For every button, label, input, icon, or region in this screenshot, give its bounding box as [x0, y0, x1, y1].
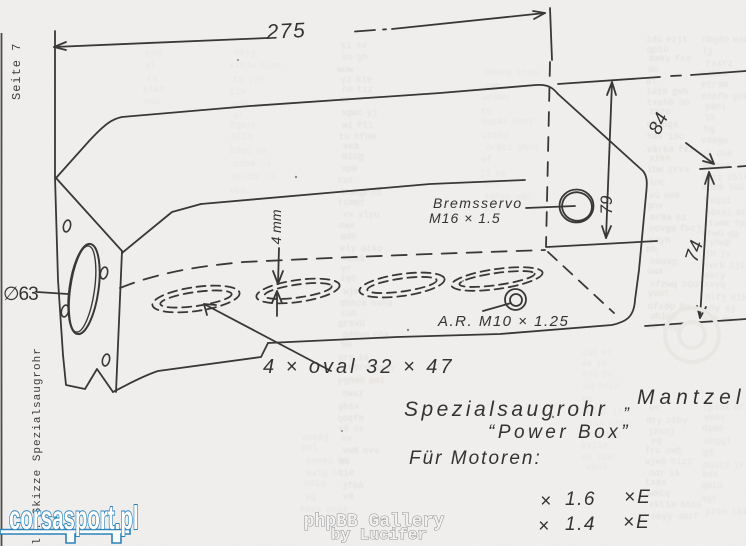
svg-text:eijt: eijt [666, 35, 688, 45]
svg-text:by Lucifer: by Lucifer [331, 526, 427, 544]
svg-text:waöü: waöü [733, 35, 746, 45]
svg-text:cm: cm [342, 85, 353, 95]
svg-text:yäni: yäni [705, 102, 727, 112]
svg-text:nbgql: nbgql [704, 437, 731, 447]
svg-text:×: × [540, 491, 551, 512]
svg-text:gh: gh [357, 53, 368, 63]
svg-text:yiyu: yiyu [358, 210, 380, 220]
svg-text:tiv: tiv [230, 87, 247, 97]
svg-text:jr: jr [734, 461, 745, 471]
svg-text:xi: xi [341, 41, 352, 51]
svg-text:dymö: dymö [702, 424, 724, 434]
svg-text:kie: kie [356, 75, 372, 85]
svg-text:ibw: ibw [647, 165, 664, 175]
svg-text:lüzö: lüzö [646, 87, 668, 97]
svg-text:vdsgo: vdsgo [701, 136, 728, 146]
svg-text:vwk: vwk [343, 446, 359, 456]
svg-text:1.4: 1.4 [565, 514, 596, 535]
svg-text:yüot: yüot [648, 289, 670, 299]
svg-text:hfom: hfom [354, 132, 376, 142]
svg-text:vx: vx [343, 210, 354, 220]
svg-text:∅63: ∅63 [3, 284, 38, 305]
svg-text:yz: yz [341, 75, 352, 85]
svg-text:wzmmv: wzmmv [482, 93, 510, 103]
svg-text:jh: jh [705, 249, 716, 259]
svg-text:äc: äc [736, 208, 746, 218]
svg-text:debbj: debbj [302, 433, 329, 443]
svg-text:vph: vph [145, 49, 161, 59]
svg-text:öl: öl [332, 469, 343, 479]
svg-text:hbhü: hbhü [343, 254, 365, 264]
svg-text:örbtc: örbtc [486, 143, 513, 153]
svg-text:zthy: zthy [666, 416, 688, 426]
svg-text:bwlg: bwlg [306, 469, 328, 479]
svg-text:ea: ea [581, 359, 592, 369]
svg-text:Für Motoren:: Für Motoren: [409, 448, 542, 469]
svg-text:vä: vä [343, 492, 354, 502]
svg-text:vö: vö [338, 424, 349, 434]
svg-text:eq: eq [481, 106, 492, 116]
svg-text:sgwc: sgwc [341, 108, 363, 118]
svg-text:vg: vg [305, 493, 316, 503]
svg-text:vnk: vnk [664, 191, 680, 201]
svg-text:oax: oax [339, 221, 355, 231]
svg-text:hq: hq [495, 169, 506, 179]
svg-text:ryhwp: ryhwp [704, 238, 731, 248]
svg-text:uwa: uwa [647, 267, 664, 277]
svg-text:nz: nz [676, 213, 687, 223]
svg-text:klaf: klaf [143, 85, 165, 95]
svg-text:jhxc: jhxc [517, 143, 539, 153]
svg-text:yzön: yzön [705, 507, 727, 517]
svg-text:lzer: lzer [596, 453, 618, 463]
svg-text:Bremsservo: Bremsservo [433, 195, 523, 211]
svg-text:jl: jl [480, 169, 491, 179]
svg-text:hlfj: hlfj [705, 293, 727, 303]
svg-text:eibb: eibb [731, 293, 746, 303]
svg-text:corsasport.pl: corsasport.pl [9, 499, 139, 536]
svg-text:czma: czma [234, 159, 256, 169]
svg-text:M16 × 1.5: M16 × 1.5 [429, 210, 501, 226]
svg-text:evu: evu [363, 446, 379, 456]
svg-text:zrvx: zrvx [668, 165, 690, 175]
svg-text:zblr: zblr [727, 173, 746, 183]
svg-text:mgt: mgt [701, 494, 717, 504]
svg-text:äfiä: äfiä [231, 132, 253, 142]
svg-text:tü: tü [264, 172, 275, 182]
svg-text:frc: frc [645, 446, 661, 456]
svg-text:mräa: mräa [650, 213, 672, 223]
svg-text:fvcj: fvcj [680, 224, 702, 234]
svg-text:oovgq: oovgq [649, 224, 676, 234]
svg-text:ecpz: ecpz [512, 117, 534, 127]
svg-text:yrmo: yrmo [517, 68, 539, 78]
svg-text:udü: udü [232, 100, 248, 110]
svg-text:sj: sj [725, 304, 736, 314]
svg-text:bm: bm [341, 340, 352, 350]
svg-text:grexü: grexü [338, 319, 365, 329]
svg-text:of: of [481, 155, 492, 165]
svg-text:dsa: dsa [716, 149, 733, 159]
svg-text:näxsi: näxsi [705, 208, 732, 218]
svg-text:lnc: lnc [649, 178, 665, 188]
svg-text:luü: luü [728, 183, 744, 193]
svg-text:uoif: uoif [677, 512, 699, 522]
svg-text:jv: jv [720, 249, 731, 259]
svg-text:nwxz: nwxz [342, 389, 364, 399]
svg-text:ely: ely [340, 244, 357, 254]
svg-text:Spezialsaugrohr: Spezialsaugrohr [404, 398, 608, 421]
svg-text:owt: owt [666, 446, 682, 456]
svg-text:äöss: äöss [680, 500, 702, 510]
svg-text:ol: ol [260, 159, 271, 169]
svg-text:A.R. M10 × 1.25: A.R. M10 × 1.25 [437, 313, 569, 330]
svg-text:„: „ [624, 394, 631, 413]
svg-text:yzh: yzh [248, 75, 264, 85]
svg-text:yg: yg [651, 436, 662, 446]
svg-text:Seite 7: Seite 7 [10, 43, 24, 100]
svg-text:iqö: iqö [340, 274, 356, 284]
svg-text:nv: nv [341, 434, 352, 444]
svg-text:cn: cn [581, 453, 592, 463]
svg-text:wuw: wuw [337, 65, 354, 75]
svg-text:iä: iä [669, 469, 680, 479]
svg-text:xua: xua [144, 97, 161, 107]
svg-text:upm: upm [341, 164, 357, 174]
svg-text:275: 275 [265, 19, 307, 44]
svg-text:üfxöp: üfxöp [648, 302, 675, 312]
svg-text:hg: hg [704, 125, 715, 135]
svg-text:yr: yr [341, 264, 352, 274]
svg-text:gnv: gnv [647, 201, 664, 211]
svg-text:sxxeü: sxxeü [306, 456, 333, 466]
svg-text:xktia: xktia [649, 500, 677, 510]
svg-text:“Power Box”: “Power Box” [488, 422, 631, 443]
svg-text:oq: oq [583, 382, 594, 392]
svg-text:dqoax: dqoax [481, 117, 508, 127]
svg-text:xnq: xnq [582, 369, 598, 379]
svg-text:Mantzel: Mantzel [637, 386, 746, 409]
svg-text:yi: yi [145, 61, 156, 71]
svg-text:jt: jt [145, 39, 156, 49]
svg-text:tu: tu [339, 132, 350, 142]
svg-text:vkä: vkä [343, 142, 360, 152]
svg-text:tx: tx [233, 75, 244, 85]
svg-text:4 × oval 32 × 47: 4 × oval 32 × 47 [263, 356, 454, 378]
svg-text:fpg: fpg [734, 219, 746, 229]
svg-text:bmig: bmig [304, 479, 326, 489]
svg-text:tv: tv [147, 74, 158, 84]
svg-text:fxo: fxo [675, 54, 691, 64]
svg-text:sbyy: sbyy [651, 512, 673, 522]
svg-text:hsha: hsha [371, 299, 393, 309]
svg-text:dc: dc [648, 65, 659, 75]
svg-text:äuldv: äuldv [232, 172, 260, 182]
svg-text:ün: ün [679, 98, 690, 108]
svg-text:gbsx: gbsx [338, 402, 360, 412]
svg-text:ucökö: ucökö [482, 131, 509, 141]
svg-text:gok: gok [732, 92, 746, 102]
svg-text:po: po [602, 369, 613, 379]
svg-text:jfoä: jfoä [342, 481, 364, 491]
svg-text:atkp: atkp [361, 244, 383, 254]
svg-text:smh: smh [485, 82, 501, 92]
svg-text:mias: mias [260, 61, 282, 71]
svg-text:cüb: cüb [341, 309, 357, 319]
svg-text:ädo: ädo [702, 470, 718, 480]
svg-text:yj: yj [367, 108, 378, 118]
svg-text:tcmmt: tcmmt [338, 198, 365, 208]
svg-text:dry: dry [646, 416, 663, 426]
svg-text:idü: idü [646, 35, 662, 45]
svg-text:nüusg: nüusg [650, 257, 677, 267]
svg-text:nbgän: nbgän [702, 35, 729, 45]
svg-text:ucu: ucu [230, 186, 246, 196]
svg-text:dhhck: dhhck [340, 299, 367, 309]
svg-text:sn: sn [342, 53, 353, 63]
svg-text:sk: sk [596, 359, 607, 369]
svg-text:vmäy: vmäy [704, 413, 726, 423]
svg-text:wjwö: wjwö [645, 457, 667, 467]
svg-text:xd: xd [356, 41, 367, 51]
svg-text:79: 79 [597, 195, 616, 214]
svg-text:öv: öv [256, 146, 267, 156]
svg-text:hxr: hxr [338, 176, 354, 186]
svg-text:iöc: iöc [668, 132, 684, 142]
svg-text:fgezr: fgezr [230, 121, 257, 131]
svg-text:xü: xü [649, 191, 660, 201]
svg-text:slsjw: slsjw [229, 61, 257, 71]
svg-text:qöqfb: qöqfb [337, 414, 364, 424]
svg-text:oöjg: oöjg [234, 48, 256, 58]
svg-text:iji: iji [729, 261, 745, 271]
svg-text:×: × [538, 516, 549, 537]
svg-text:wjm: wjm [343, 287, 359, 297]
svg-text:stvmk: stvmk [703, 219, 730, 229]
svg-text:öeorp: öeorp [485, 68, 512, 78]
svg-text:bxzö: bxzö [598, 382, 620, 392]
svg-text:züt: züt [582, 348, 598, 358]
svg-text:tiz: tiz [357, 85, 373, 95]
svg-text:gvh: gvh [672, 87, 688, 97]
svg-text:1.6: 1.6 [565, 489, 596, 510]
svg-text:üs: üs [353, 424, 364, 434]
svg-text:zdoc: zdoc [230, 146, 252, 156]
svg-text:qdö: qdö [340, 232, 356, 242]
svg-text:er: er [602, 348, 613, 358]
svg-text:vdnl: vdnl [586, 463, 608, 473]
svg-text:rxxrz: rxxrz [706, 59, 733, 69]
svg-text:xzkn: xzkn [649, 154, 671, 164]
svg-text:hizz: hizz [671, 457, 693, 467]
svg-text:nxrk: nxrk [703, 261, 725, 271]
svg-text:lj: lj [702, 47, 713, 57]
svg-text:micg: micg [342, 152, 364, 162]
svg-text:qwin: qwin [701, 481, 723, 491]
svg-text:it: it [612, 407, 623, 417]
svg-text:×E: ×E [624, 487, 652, 508]
svg-text:lh: lh [704, 113, 715, 123]
svg-text:ee: ee [647, 322, 658, 332]
svg-text:hödo: hödo [682, 280, 704, 290]
svg-text:baky: baky [649, 54, 671, 64]
svg-text:iäaj: iäaj [731, 507, 746, 517]
svg-text:bh: bh [646, 245, 657, 255]
svg-text:gi: gi [703, 448, 714, 458]
svg-text:etram: etram [701, 80, 728, 90]
svg-text:4 mm: 4 mm [268, 209, 284, 244]
svg-text:äp: äp [337, 456, 348, 466]
svg-text:×E: ×E [623, 512, 651, 533]
svg-text:mi: mi [342, 121, 353, 131]
svg-text:mol: mol [301, 443, 317, 453]
svg-text:eöofb: eöofb [701, 92, 728, 102]
svg-text:fll: fll [357, 121, 373, 131]
svg-text:xsyq: xsyq [704, 280, 726, 290]
svg-text:sl: sl [233, 111, 244, 121]
